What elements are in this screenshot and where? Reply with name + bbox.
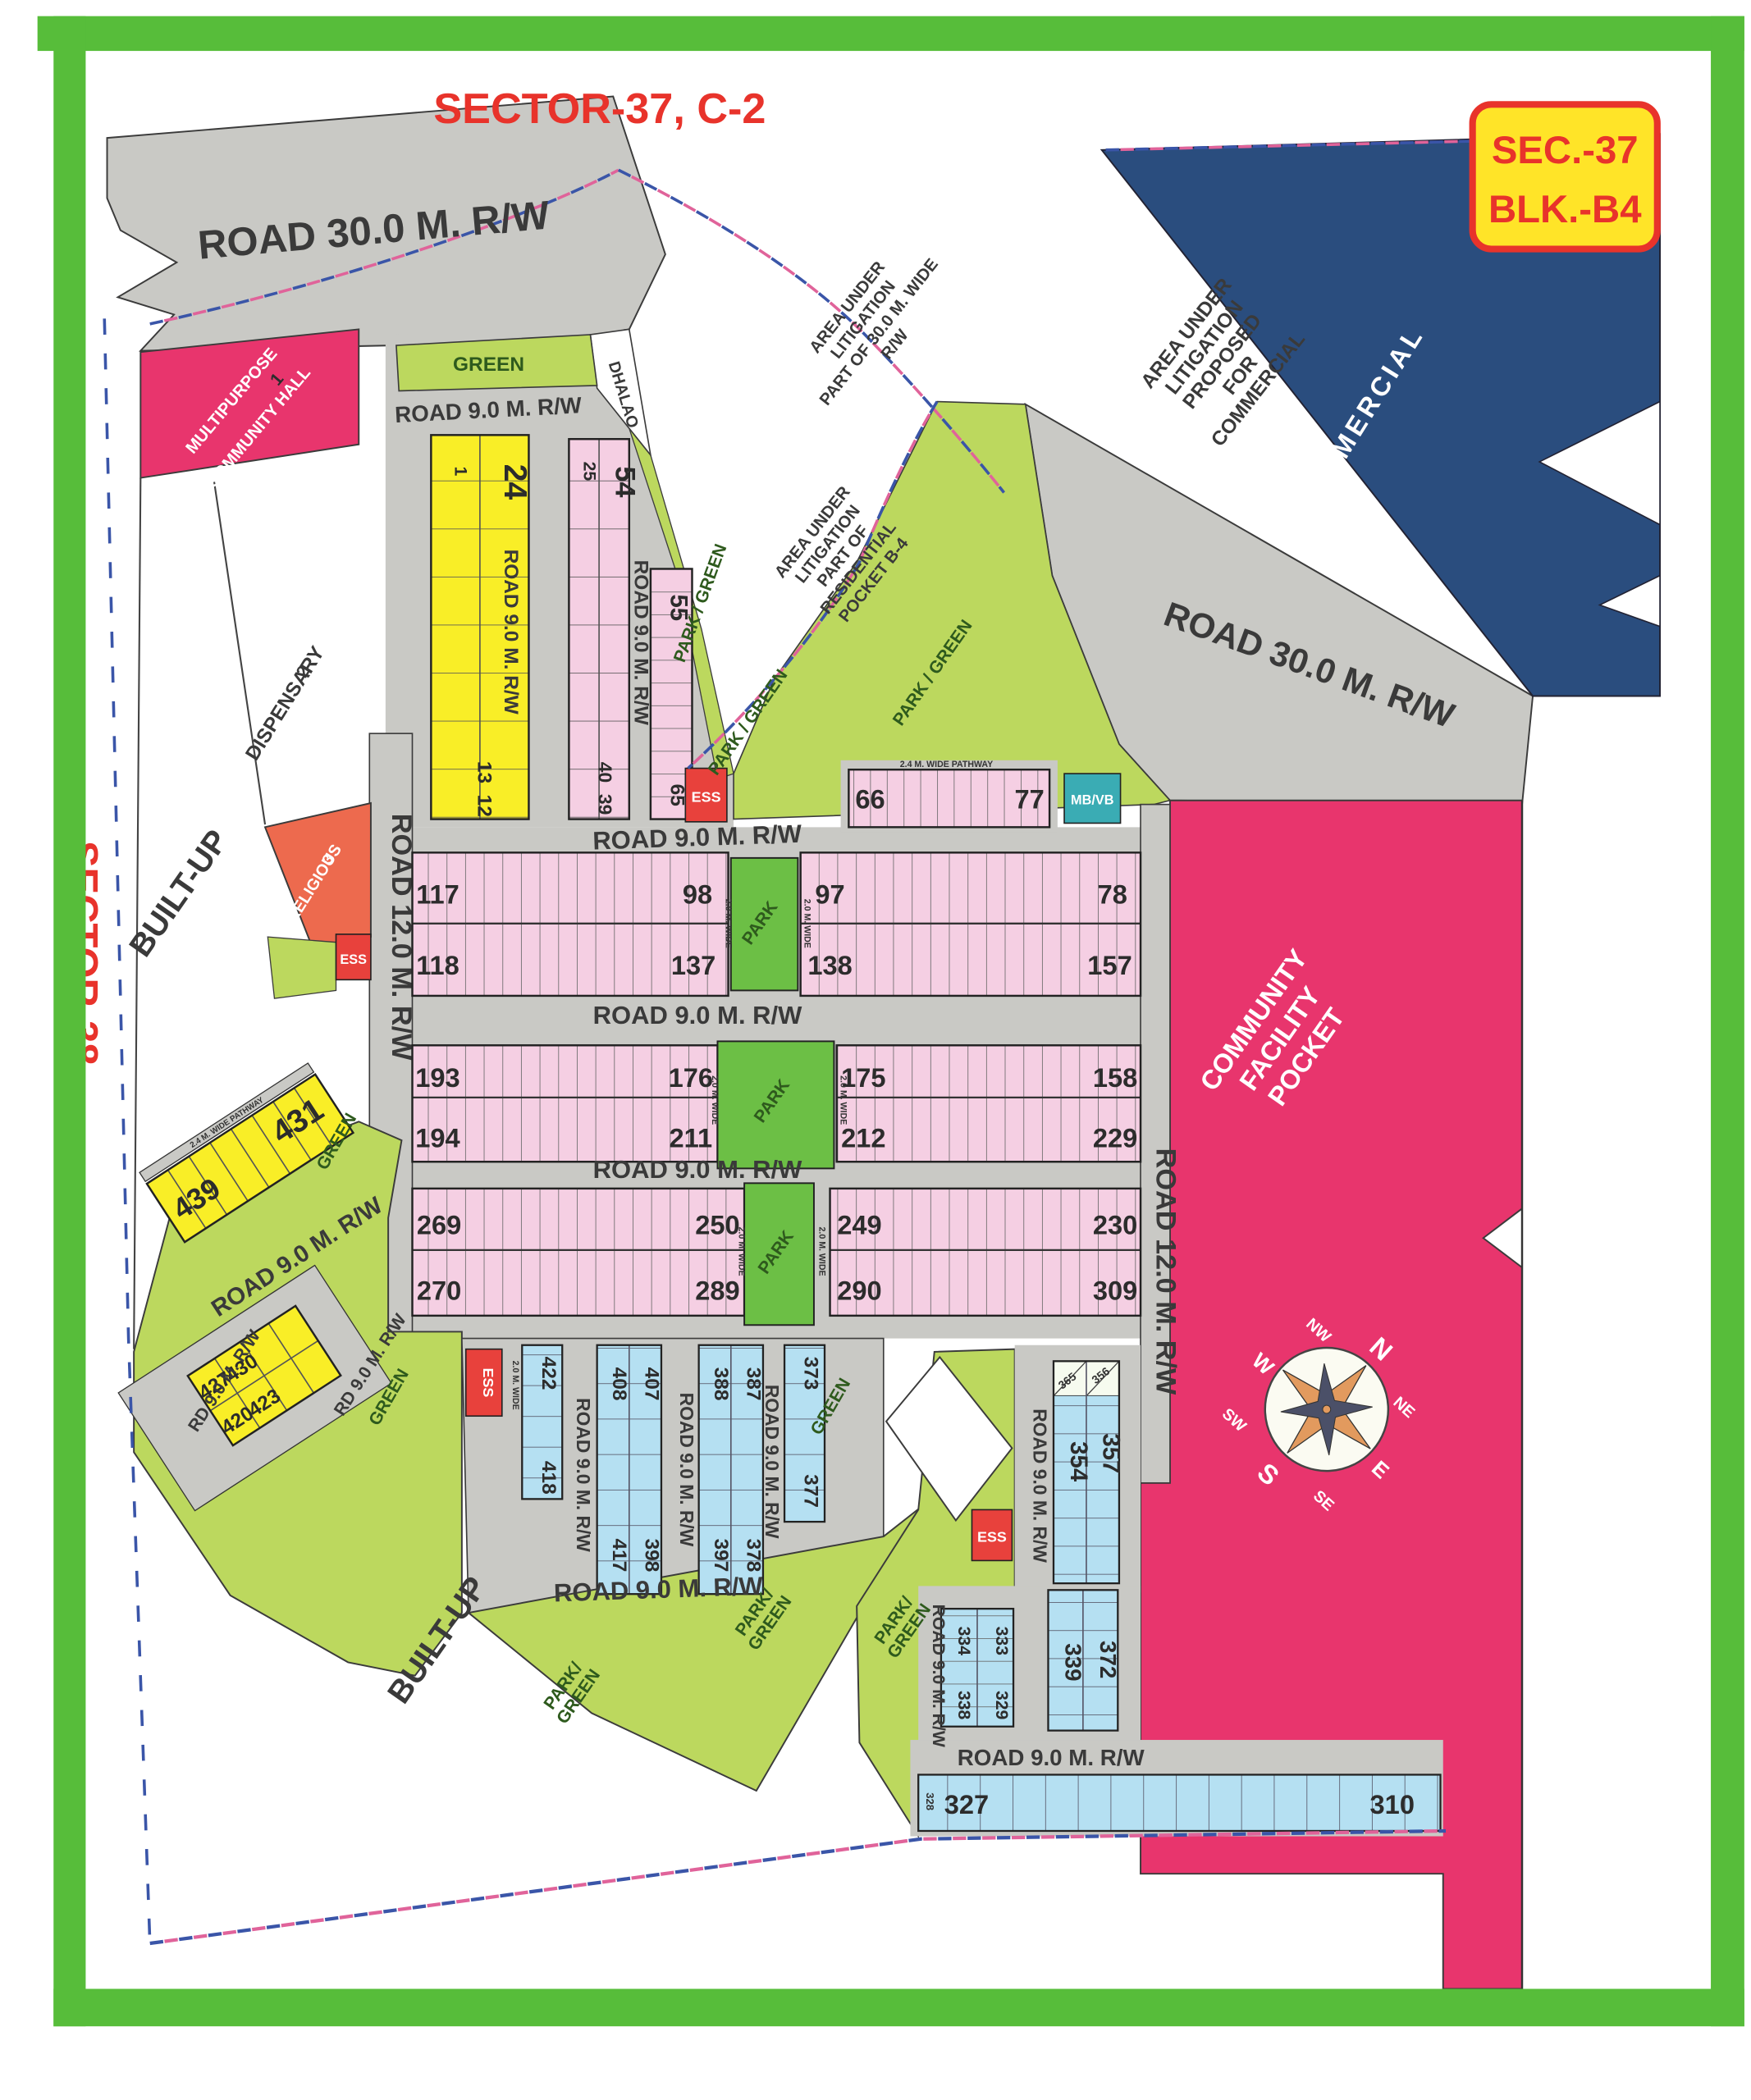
plot-number: 329 xyxy=(992,1691,1011,1719)
plot-number: 137 xyxy=(671,950,715,980)
plot-number: 118 xyxy=(416,950,459,980)
plot-layout-map: 1 24 13 12 25 54 40 39 55 65 ESS 2.4 M. … xyxy=(0,0,1751,2100)
plot-number: 193 xyxy=(415,1062,459,1093)
road-9-label-r3: ROAD 9.0 M. R/W xyxy=(593,1155,803,1184)
road-9-vert-1: ROAD 9.0 M. R/W xyxy=(500,550,522,715)
plot-number: 372 xyxy=(1095,1641,1121,1678)
strip-d-pink: 2.4 M. WIDE PATHWAY 66 77 xyxy=(841,760,1058,833)
plot-number: 65 xyxy=(665,784,688,806)
plot-number: 334 xyxy=(954,1627,973,1656)
road-9-vert-7: ROAD 9.0 M. R/W xyxy=(929,1605,948,1747)
plot-number: 117 xyxy=(416,879,459,909)
built-up-label-1: BUILT-UP xyxy=(123,824,235,963)
plot-number: 212 xyxy=(841,1122,885,1153)
green-sliver-left xyxy=(267,937,336,998)
plot-number: 194 xyxy=(415,1122,459,1153)
plot-number: 54 xyxy=(609,466,640,497)
ess-label: ESS xyxy=(692,788,721,805)
green-strip-label: GREEN xyxy=(453,354,524,376)
plot-number: 249 xyxy=(837,1209,881,1239)
plot-number: 13 xyxy=(473,761,495,783)
road-9-vert-2: ROAD 9.0 M. R/W xyxy=(629,560,651,726)
svg-text:DISPENSARY: DISPENSARY xyxy=(241,642,329,764)
plot-number: 422 xyxy=(537,1357,560,1390)
plot-number: 12 xyxy=(473,795,495,817)
plot-number: 408 xyxy=(608,1367,630,1401)
road-9-label-r2: ROAD 9.0 M. R/W xyxy=(593,1001,803,1029)
ess-box-4: ESS xyxy=(466,1349,502,1417)
page-title: SECTOR-37, C-2 xyxy=(433,85,766,133)
road-9-vert-6: ROAD 9.0 M. R/W xyxy=(1030,1408,1051,1563)
plot-number: 398 xyxy=(640,1538,662,1572)
frame-top xyxy=(38,16,1744,51)
ess-label: ESS xyxy=(480,1367,496,1397)
plot-number: 250 xyxy=(695,1209,739,1239)
park-width-note: 2.0 M. WIDE xyxy=(737,1227,747,1276)
plot-number: 377 xyxy=(800,1474,822,1508)
plot-number: 310 xyxy=(1370,1789,1415,1819)
plot-number: 290 xyxy=(837,1275,881,1305)
plot-number: 1 xyxy=(451,466,470,476)
plot-number: 77 xyxy=(1014,784,1044,815)
road-9-vert-3: ROAD 9.0 M. R/W xyxy=(573,1398,594,1552)
plot-number: 378 xyxy=(742,1538,764,1572)
sector-badge: SEC.-37 BLK.-B4 xyxy=(1473,104,1657,249)
block-l: 334 338 333 329 xyxy=(941,1609,1013,1727)
plot-number: 24 xyxy=(497,464,533,500)
plot-number: 269 xyxy=(417,1209,461,1239)
map-canvas: 1 24 13 12 25 54 40 39 55 65 ESS 2.4 M. … xyxy=(0,0,1751,2100)
plot-number: 97 xyxy=(815,879,844,909)
plot-number: 40 xyxy=(594,762,615,783)
block-k: 339 372 xyxy=(1048,1590,1121,1730)
svg-text:AREA UNDERLITIGATIONPART OF 30: AREA UNDERLITIGATIONPART OF 30.0 M. WIDE… xyxy=(784,231,958,421)
mb-vb-label: MB/VB xyxy=(1071,793,1114,808)
block-h: 388 387 397 378 xyxy=(699,1345,765,1594)
plot-number: 339 xyxy=(1061,1643,1086,1681)
plot-row-3: 269 250 270 289 249 230 290 309 PARK 2.0… xyxy=(413,1183,1141,1325)
park-width-note: 2.0 M. WIDE xyxy=(802,899,812,948)
plot-number: 418 xyxy=(537,1461,560,1495)
col-422: 422 418 xyxy=(522,1345,562,1500)
plot-number: 407 xyxy=(640,1367,662,1401)
plot-number: 78 xyxy=(1098,879,1127,909)
plot-number: 138 xyxy=(807,950,852,980)
plot-number: 373 xyxy=(800,1357,822,1390)
strip-m: 328 327 310 xyxy=(918,1774,1440,1831)
plot-row-1: 117 98 118 137 97 78 138 157 PARK 2.0 M.… xyxy=(413,852,1141,996)
road-9-vert-5: ROAD 9.0 M. R/W xyxy=(761,1385,783,1539)
plot-number: 211 xyxy=(670,1122,713,1153)
ess-label: ESS xyxy=(977,1529,1007,1545)
plot-number: 327 xyxy=(944,1789,989,1819)
road-9-vert-4: ROAD 9.0 M. R/W xyxy=(676,1393,697,1547)
plot-number: 270 xyxy=(417,1275,461,1305)
plot-number: 338 xyxy=(954,1691,973,1720)
park-width-note: 2.0 M. WIDE xyxy=(839,1075,848,1125)
ess-label: ESS xyxy=(340,952,367,967)
plot-number: 354 xyxy=(1065,1441,1092,1482)
road-9-label-strip-m: ROAD 9.0 M. R/W xyxy=(958,1745,1145,1770)
plot-number: 230 xyxy=(1093,1209,1137,1239)
ess-box-3: ESS xyxy=(972,1509,1012,1560)
plot-number: 157 xyxy=(1087,950,1132,980)
block-j: 365 356 354 357 xyxy=(1054,1361,1124,1583)
multipurpose-hall-area xyxy=(140,329,359,477)
plot-number: 158 xyxy=(1093,1062,1137,1093)
road-12-left-label: ROAD 12.0 M. R/W xyxy=(386,814,417,1061)
plot-number: 289 xyxy=(695,1275,739,1305)
plot-number: 397 xyxy=(710,1538,732,1572)
plot-number: 357 xyxy=(1097,1433,1124,1473)
plot-number: 39 xyxy=(594,794,615,815)
mb-vb-box: MB/VB xyxy=(1064,774,1121,823)
plot-number: 388 xyxy=(710,1367,732,1401)
park-width-note: 2.0 M. WIDE xyxy=(816,1227,826,1276)
block-g: 408 407 417 398 xyxy=(597,1345,663,1594)
plot-row-2: 193 176 194 211 175 158 212 229 PARK 2.0… xyxy=(413,1041,1141,1168)
badge-line-2: BLK.-B4 xyxy=(1488,188,1642,231)
plot-number: 176 xyxy=(669,1062,713,1093)
plot-number: 98 xyxy=(683,879,712,909)
park-width-note: 2.0 M. WIDE xyxy=(710,1075,720,1125)
plot-number: 229 xyxy=(1093,1122,1137,1153)
width-note: 2.0 M. WIDE xyxy=(510,1361,520,1410)
frame-right xyxy=(1711,16,1744,2027)
badge-line-1: SEC.-37 xyxy=(1492,129,1639,172)
park-width-note: 2.0 M. WIDE xyxy=(723,899,733,948)
pathway-label: 2.4 M. WIDE PATHWAY xyxy=(900,760,993,769)
frame-left xyxy=(53,16,85,2027)
plot-number: 328 xyxy=(924,1792,936,1810)
plot-number: 333 xyxy=(992,1627,1011,1656)
dispensary-text: 2 DISPENSARY xyxy=(241,642,329,764)
plot-number: 309 xyxy=(1093,1275,1137,1305)
litigation-rw-text: AREA UNDERLITIGATIONPART OF 30.0 M. WIDE… xyxy=(784,231,958,421)
frame-bottom xyxy=(53,1988,1744,2026)
plot-number: 66 xyxy=(855,784,885,815)
plot-number: 25 xyxy=(579,462,598,482)
ess-box-1: ESS xyxy=(336,934,371,979)
plot-number: 417 xyxy=(608,1538,630,1572)
road-12-right-label: ROAD 12.0 M. R/W xyxy=(1150,1148,1182,1395)
